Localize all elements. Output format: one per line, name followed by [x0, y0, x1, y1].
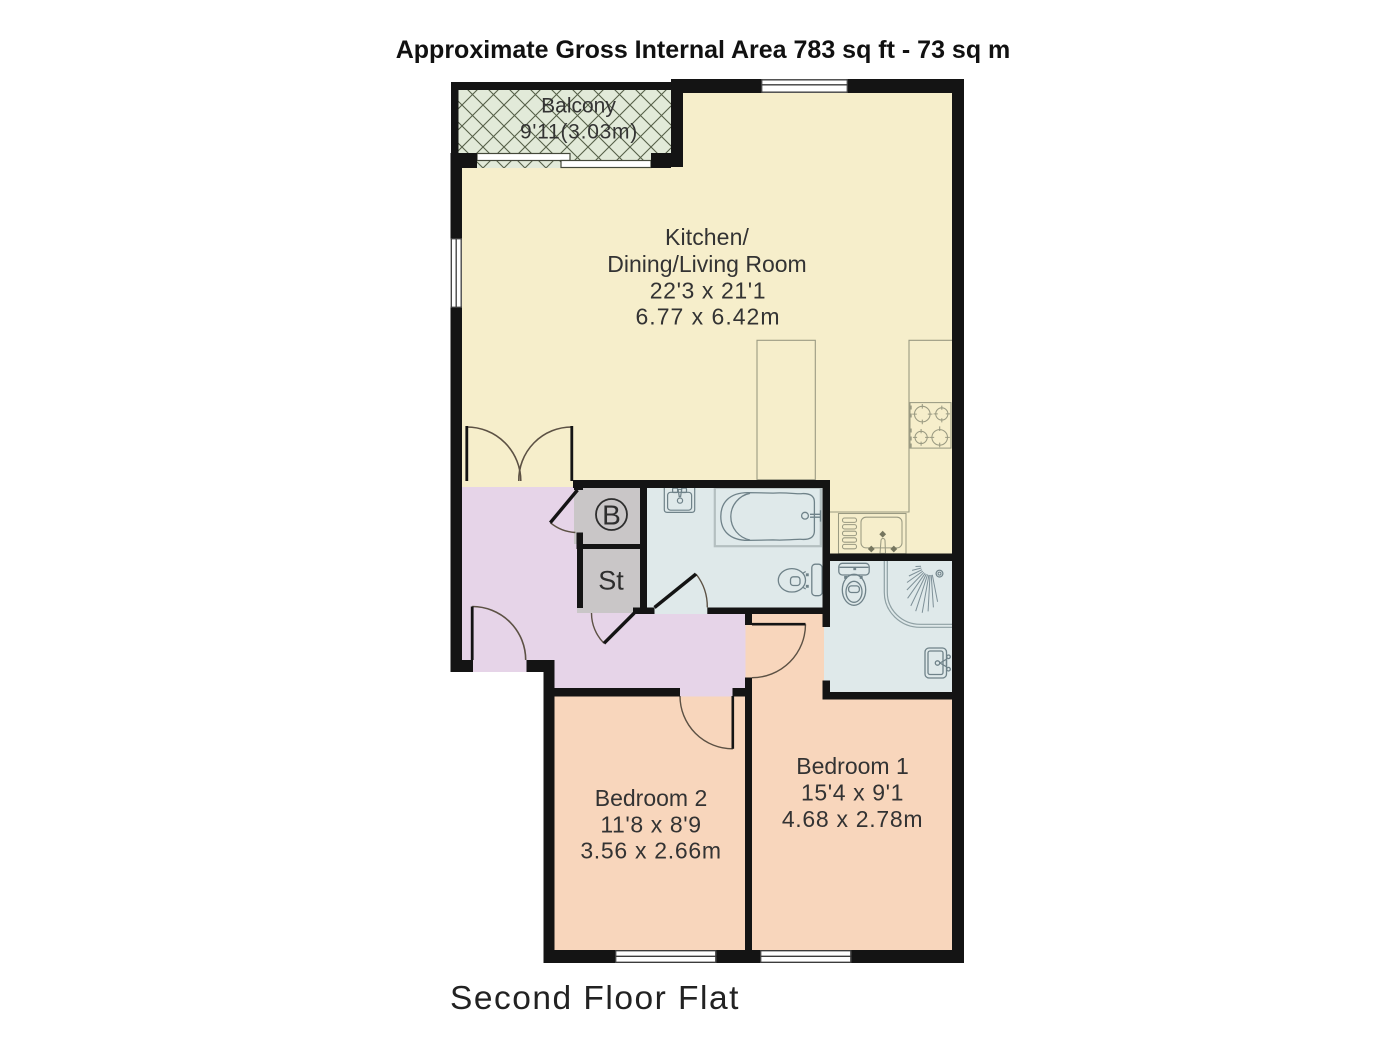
- svg-text:4.68 x 2.78m: 4.68 x 2.78m: [782, 806, 923, 832]
- svg-text:Approximate Gross Internal Are: Approximate Gross Internal Area 783 sq f…: [396, 36, 1011, 64]
- svg-text:3.56 x 2.66m: 3.56 x 2.66m: [580, 838, 721, 864]
- svg-text:Bedroom 1: Bedroom 1: [796, 753, 909, 779]
- svg-text:9'11(3.03m): 9'11(3.03m): [520, 121, 638, 144]
- svg-text:B: B: [602, 500, 621, 531]
- svg-text:15'4 x 9'1: 15'4 x 9'1: [801, 780, 904, 806]
- svg-text:22'3 x 21'1: 22'3 x 21'1: [650, 278, 766, 304]
- svg-text:Kitchen/: Kitchen/: [665, 224, 749, 250]
- svg-text:St: St: [598, 566, 624, 596]
- svg-text:6.77 x 6.42m: 6.77 x 6.42m: [636, 304, 781, 330]
- svg-text:Balcony: Balcony: [541, 95, 616, 118]
- svg-text:11'8 x 8'9: 11'8 x 8'9: [600, 812, 701, 838]
- svg-text:Bedroom 2: Bedroom 2: [595, 785, 708, 811]
- svg-text:Second Floor Flat: Second Floor Flat: [450, 980, 740, 1017]
- svg-text:Dining/Living Room: Dining/Living Room: [607, 251, 806, 277]
